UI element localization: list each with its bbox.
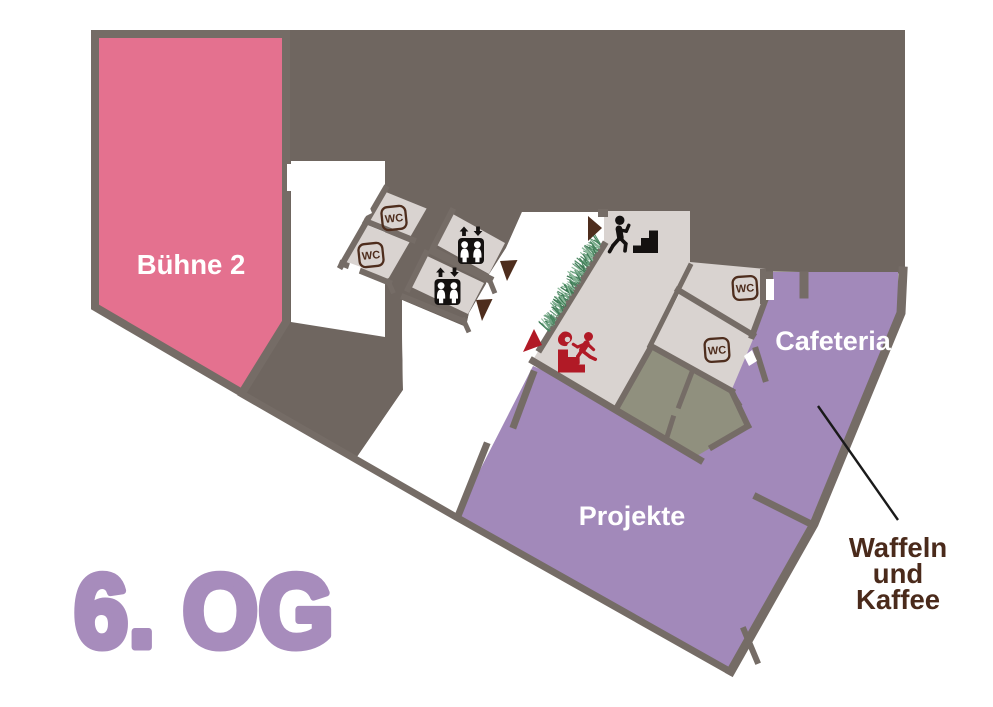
svg-text:Kaffee: Kaffee — [856, 584, 940, 615]
svg-text:Cafeteria: Cafeteria — [775, 326, 892, 356]
svg-text:WC: WC — [384, 212, 404, 226]
svg-text:6. OG: 6. OG — [74, 554, 334, 670]
svg-text:Bühne 2: Bühne 2 — [137, 249, 245, 280]
svg-text:WC: WC — [361, 249, 381, 263]
svg-text:Projekte: Projekte — [579, 501, 686, 531]
svg-text:WC: WC — [736, 282, 755, 295]
svg-text:WC: WC — [708, 344, 727, 357]
